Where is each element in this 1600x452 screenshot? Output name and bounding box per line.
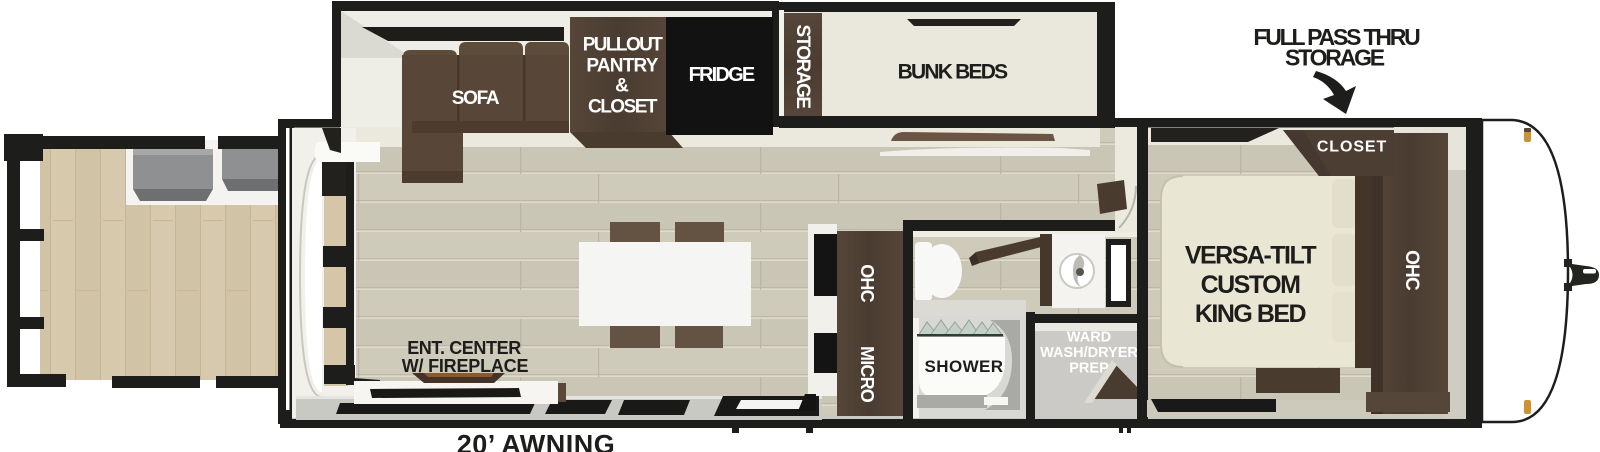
svg-text:SOFA: SOFA — [452, 88, 500, 109]
svg-text:ENT. CENTER: ENT. CENTER — [407, 338, 521, 358]
svg-text:PULLOUT: PULLOUT — [583, 35, 664, 56]
svg-text:PREP: PREP — [1069, 361, 1109, 377]
svg-text:CLOSET: CLOSET — [588, 97, 658, 118]
svg-text:SHOWER: SHOWER — [925, 357, 1004, 376]
svg-text:MICRO: MICRO — [857, 346, 877, 403]
svg-text:STORAGE: STORAGE — [1285, 45, 1385, 71]
svg-text:PANTRY: PANTRY — [586, 56, 658, 77]
svg-text:FRIDGE: FRIDGE — [689, 64, 755, 86]
svg-text:CUSTOM: CUSTOM — [1201, 271, 1301, 299]
svg-text:&: & — [615, 76, 629, 97]
svg-text:BUNK BEDS: BUNK BEDS — [898, 61, 1008, 84]
svg-text:WASH/DRYER: WASH/DRYER — [1040, 345, 1138, 361]
svg-text:20’ AWNING: 20’ AWNING — [457, 430, 616, 452]
svg-text:OHC: OHC — [857, 264, 877, 302]
svg-text:CLOSET: CLOSET — [1317, 139, 1387, 156]
svg-text:W/ FIREPLACE: W/ FIREPLACE — [402, 356, 529, 376]
svg-text:KING BED: KING BED — [1195, 300, 1306, 328]
svg-text:STORAGE: STORAGE — [792, 24, 813, 108]
svg-text:VERSA-TILT: VERSA-TILT — [1185, 242, 1317, 270]
svg-text:OHC: OHC — [1401, 250, 1422, 291]
svg-text:WARD: WARD — [1067, 330, 1111, 346]
